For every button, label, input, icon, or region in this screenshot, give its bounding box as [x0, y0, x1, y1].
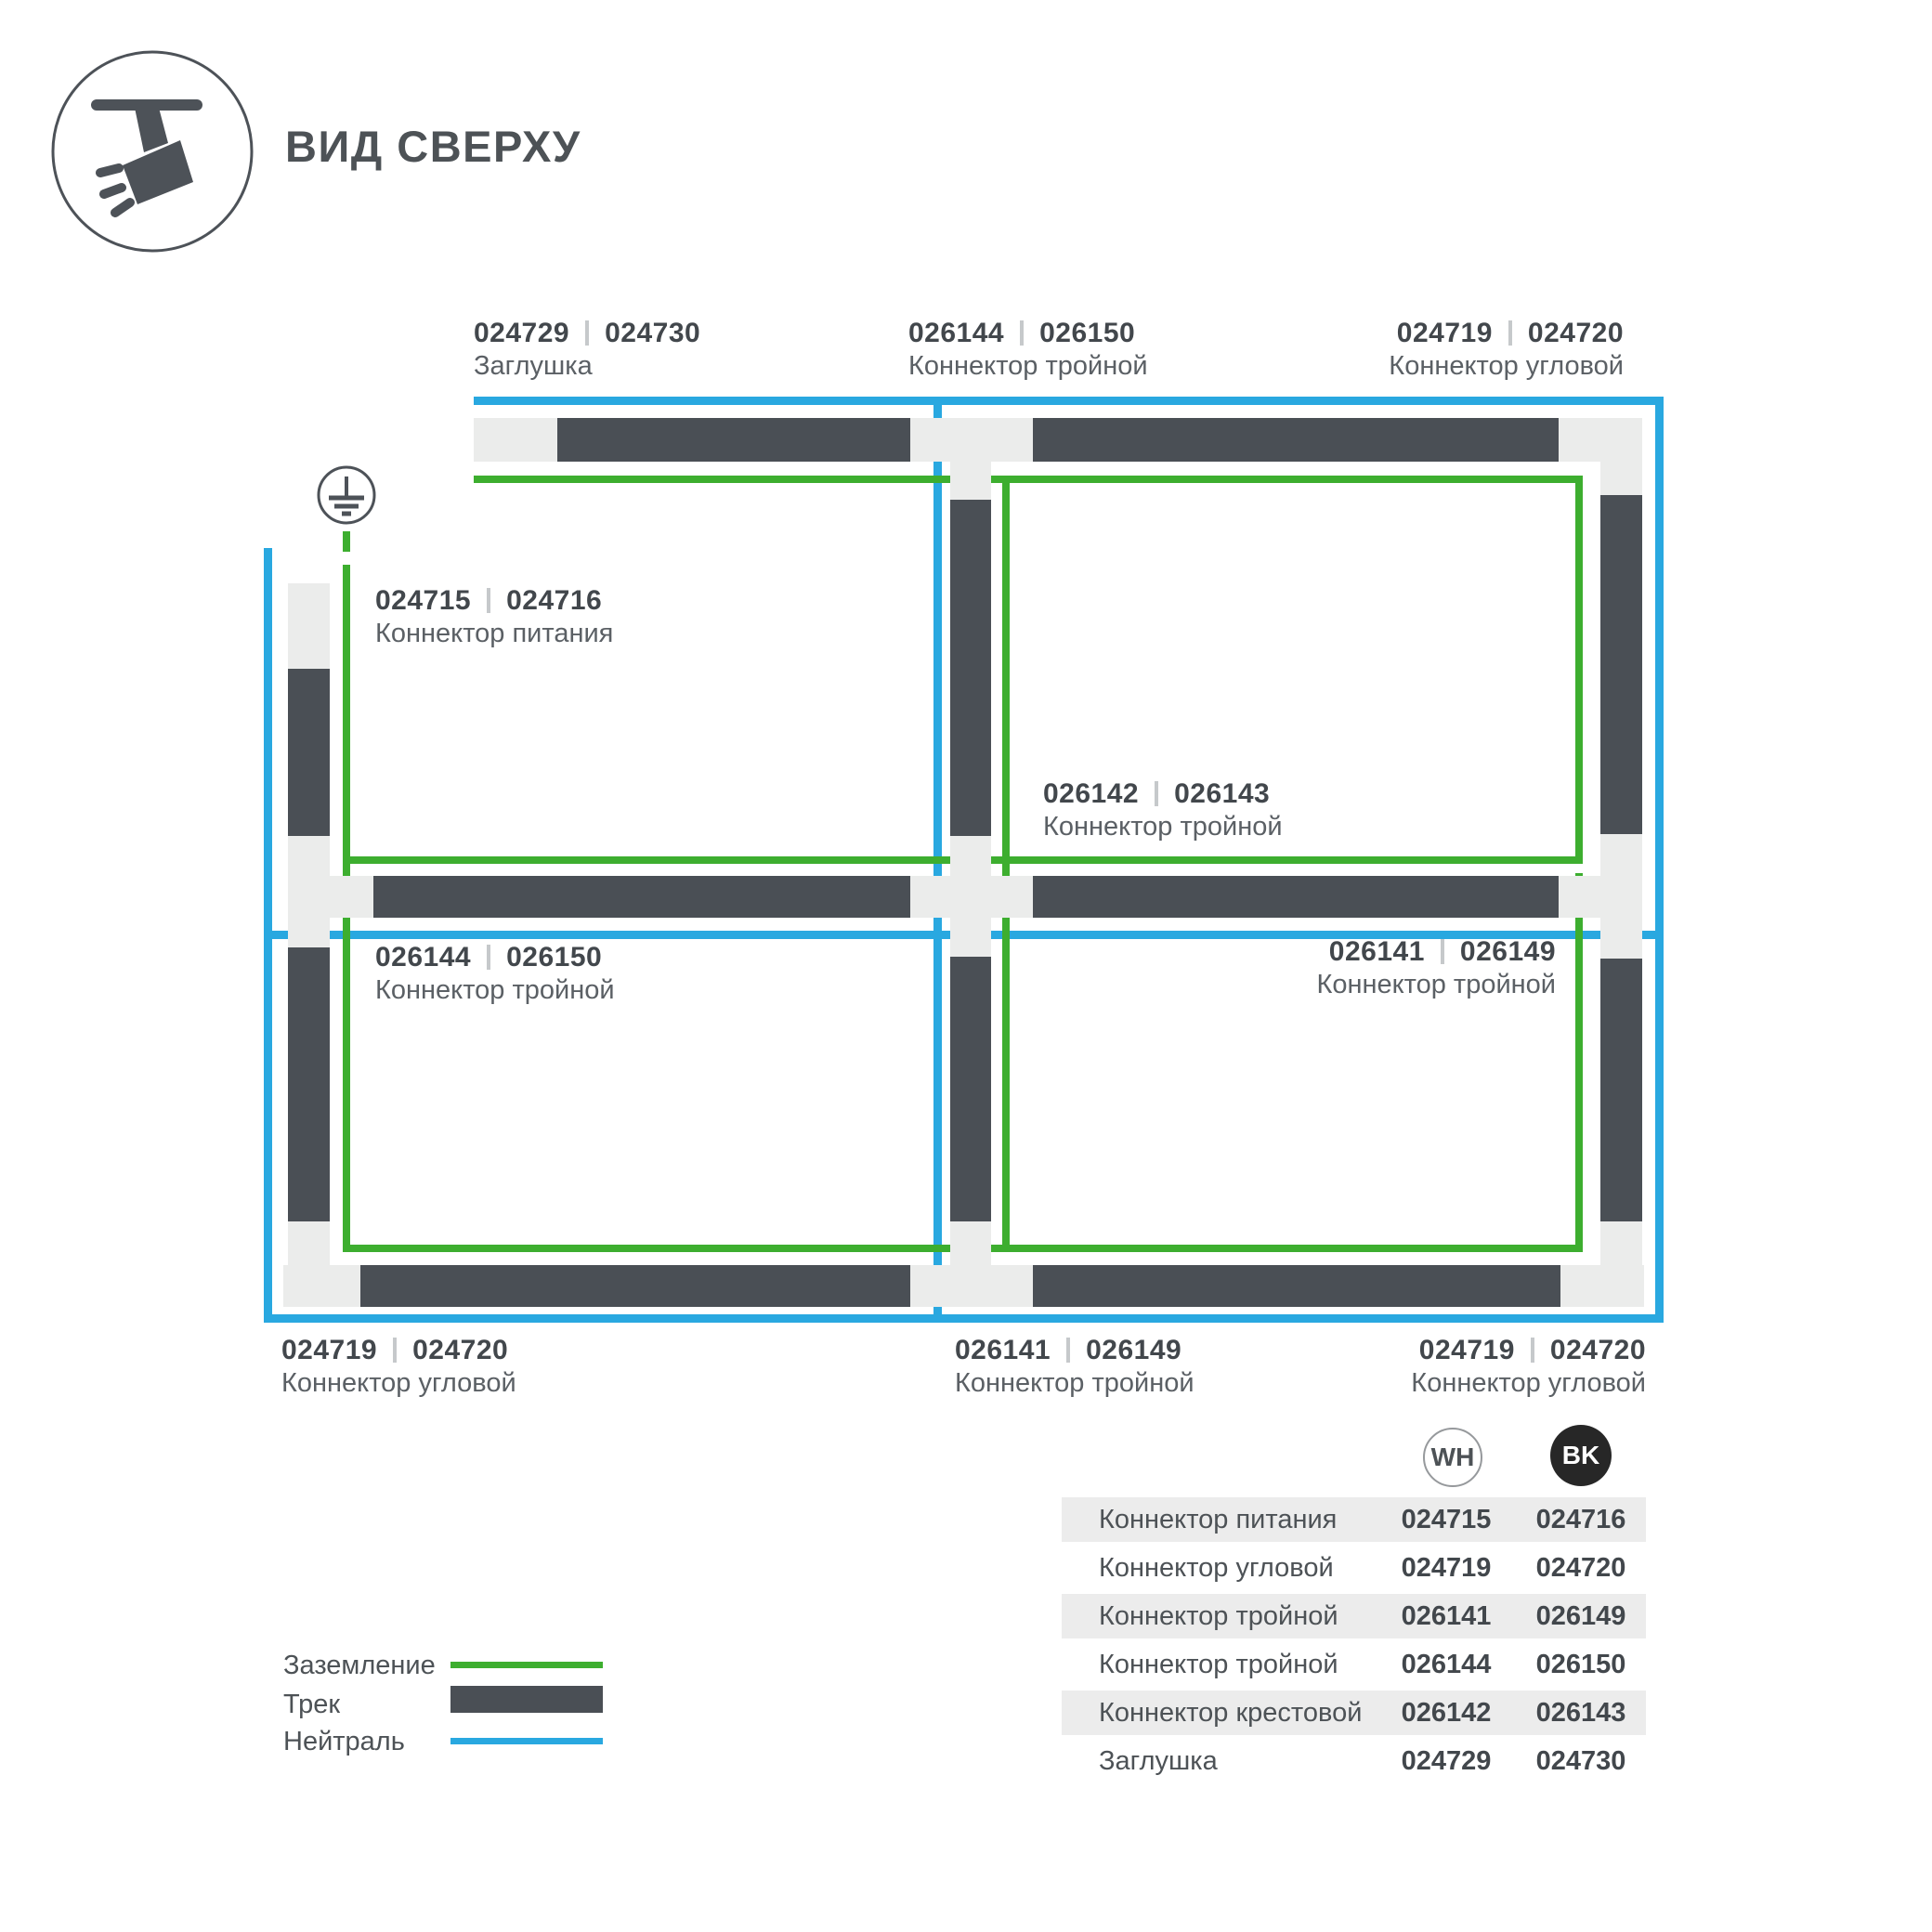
- neutral-line: [1655, 397, 1664, 1323]
- code-separator: [1155, 781, 1158, 806]
- legend-label: Трек: [283, 1690, 340, 1719]
- article-codes: 024715024716: [375, 585, 613, 617]
- neutral-line: [264, 548, 272, 1323]
- article-codes: 026141026149: [955, 1335, 1194, 1366]
- article-codes: 026141026149: [1316, 936, 1556, 968]
- connector-name: Коннектор угловой: [1411, 1368, 1646, 1399]
- legend-label: Нейтраль: [283, 1727, 405, 1756]
- color-badge-white: WH: [1423, 1428, 1482, 1487]
- track-segment: [1033, 1265, 1560, 1307]
- legend-item-ground: Заземление: [283, 1649, 655, 1682]
- page: ВИД СВЕРХУ 024729024730 Заглушка: [0, 0, 1932, 1932]
- connector-name: Коннектор тройной: [955, 1368, 1194, 1399]
- table-row: Коннектор крестовой 026142 026143: [1062, 1690, 1646, 1735]
- track-segment: [557, 418, 910, 462]
- track-segment: [288, 947, 330, 1221]
- neutral-line: [264, 1314, 1664, 1323]
- code-separator: [487, 945, 490, 970]
- track-segment: [1600, 959, 1642, 1221]
- color-badge-black: BK: [1550, 1425, 1612, 1486]
- diagram-label-tee-top: 026144026150 Коннектор тройной: [908, 318, 1148, 382]
- diagram-label-corner-bottomright: 024719024720 Коннектор угловой: [1411, 1335, 1646, 1399]
- table-row: Коннектор угловой 024719 024720: [1062, 1546, 1646, 1590]
- legend-track-swatch: [450, 1686, 603, 1713]
- ground-line: [1002, 476, 1010, 1252]
- code-separator: [1508, 320, 1512, 346]
- track-segment: [1033, 418, 1559, 462]
- diagram-label-corner-bottomleft: 024719024720 Коннектор угловой: [281, 1335, 516, 1399]
- legend-ground-swatch: [450, 1662, 603, 1668]
- code-separator: [1531, 1338, 1534, 1363]
- connector-name: Коннектор угловой: [281, 1368, 516, 1399]
- table-row: Коннектор питания 024715 024716: [1062, 1497, 1646, 1542]
- diagram-label-tee-bottom: 026141026149 Коннектор тройной: [955, 1335, 1194, 1399]
- connector-name: Коннектор тройной: [908, 351, 1148, 382]
- track-segment: [1033, 876, 1559, 918]
- connector-name: Коннектор тройной: [1316, 970, 1556, 1000]
- code-separator: [1066, 1338, 1070, 1363]
- code-separator: [393, 1338, 397, 1363]
- page-title: ВИД СВЕРХУ: [285, 121, 581, 172]
- legend-item-track: Трек: [283, 1688, 655, 1721]
- connector-name: Коннектор тройной: [1043, 812, 1283, 842]
- article-codes: 024719024720: [1389, 318, 1624, 349]
- article-codes: 024719024720: [281, 1335, 516, 1366]
- article-codes: 024719024720: [1411, 1335, 1646, 1366]
- connector-name: Заглушка: [474, 351, 700, 382]
- diagram-label-tee-midright: 026141026149 Коннектор тройной: [1316, 936, 1556, 1000]
- connector-name: Коннектор питания: [375, 619, 613, 649]
- connector-name: Коннектор тройной: [375, 975, 615, 1006]
- track-segment: [1600, 495, 1642, 834]
- legend-neutral-swatch: [450, 1738, 603, 1744]
- neutral-line: [474, 397, 1664, 405]
- article-table: Коннектор питания 024715 024716 Коннекто…: [1062, 1497, 1646, 1787]
- article-codes: 024729024730: [474, 318, 700, 349]
- article-codes: 026142026143: [1043, 778, 1283, 810]
- track-light-icon: [49, 48, 255, 255]
- table-row: Коннектор тройной 026141 026149: [1062, 1594, 1646, 1638]
- diagram-label-cross-center: 026142026143 Коннектор тройной: [1043, 778, 1283, 842]
- article-codes: 026144026150: [908, 318, 1148, 349]
- article-codes: 026144026150: [375, 942, 615, 973]
- diagram-label-endcap-top: 024729024730 Заглушка: [474, 318, 700, 382]
- connector-name: Коннектор угловой: [1389, 351, 1624, 382]
- ground-icon: [316, 464, 377, 526]
- table-row: Заглушка 024729 024730: [1062, 1739, 1646, 1783]
- ground-line: [474, 476, 1583, 483]
- code-separator: [585, 320, 589, 346]
- diagram-label-tee-midleft: 026144026150 Коннектор тройной: [375, 942, 615, 1006]
- ground-line: [1575, 476, 1583, 864]
- diagram-label-power-feed: 024715024716 Коннектор питания: [375, 585, 613, 649]
- diagram-label-corner-topright: 024719024720 Коннектор угловой: [1389, 318, 1624, 382]
- code-separator: [487, 588, 490, 613]
- ground-line-dashed: [343, 531, 350, 585]
- ground-line: [1575, 873, 1583, 1252]
- track-segment: [950, 957, 991, 1221]
- table-row: Коннектор тройной 026144 026150: [1062, 1642, 1646, 1687]
- code-separator: [1020, 320, 1024, 346]
- track-segment: [360, 1265, 910, 1307]
- track-segment: [288, 669, 330, 836]
- code-separator: [1441, 939, 1444, 964]
- ground-line: [343, 583, 350, 1252]
- legend-item-neutral: Нейтраль: [283, 1725, 655, 1758]
- track-segment: [373, 876, 910, 918]
- legend-label: Заземление: [283, 1651, 436, 1680]
- track-segment: [950, 500, 991, 836]
